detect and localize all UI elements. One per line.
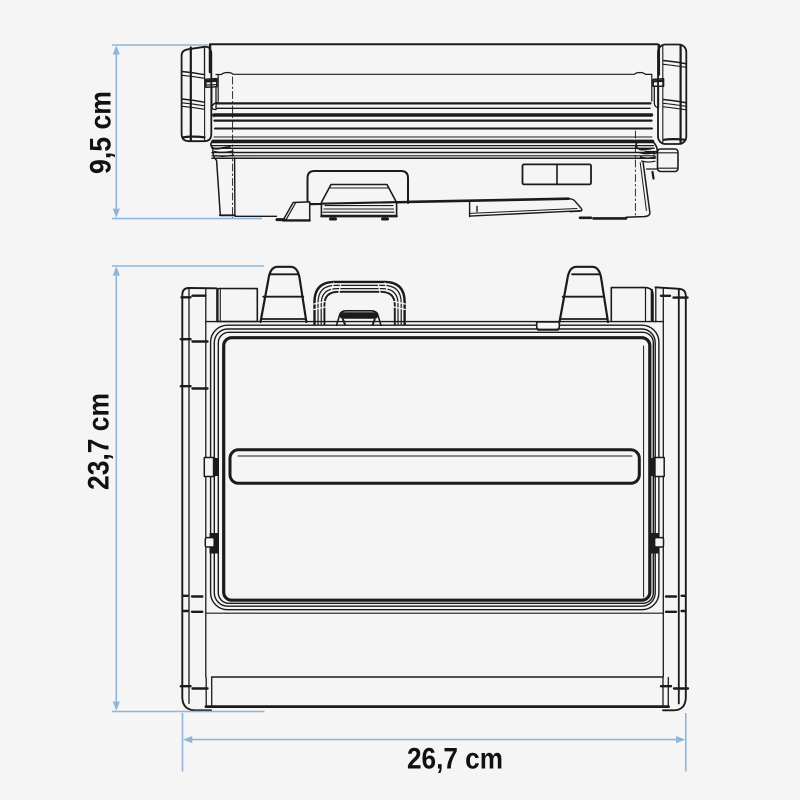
svg-text:26,7 cm: 26,7 cm [407, 743, 503, 776]
svg-text:23,7 cm: 23,7 cm [83, 393, 116, 490]
svg-text:9,5 cm: 9,5 cm [85, 91, 118, 174]
